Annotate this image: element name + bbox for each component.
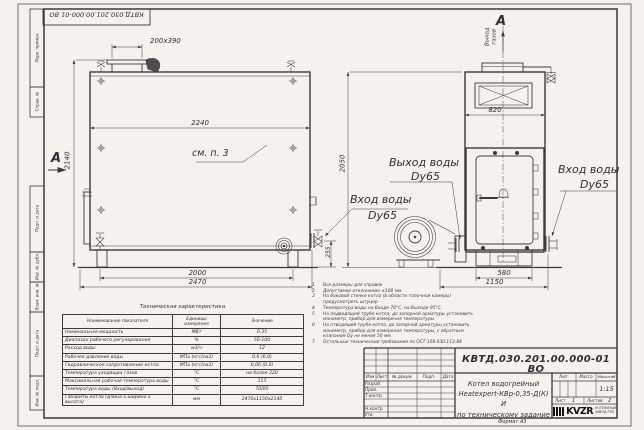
top-valve-icon [546,67,556,83]
dim-top-width: 820 [480,107,510,114]
top-stamp: КВТД.030.201.00.000-01 ВО [43,11,150,18]
product-name: Котел водогрейный Heatexpert-КВр-0,35-Д(… [456,379,551,420]
fan-icon [395,217,467,268]
col-doc: № докум. [388,375,417,379]
dim-frame: 2000 [170,270,225,277]
door-lock-icon [499,189,508,197]
scale-header: Масштаб [596,375,617,379]
company-logo: KVZR КОТЕЛЬНЫЙ ЗАВОД РЭП [553,405,616,417]
margin-label: Подп. и дата [35,185,40,251]
tech-table-title: Техническая характеристика [62,305,303,311]
margin-label: Подп. и дата [35,311,40,375]
inlet-water-label: Вход воды [350,194,411,205]
col-list: Лист [376,375,388,379]
tech-header-row: Наименование показателя Единицы измерени… [63,315,304,329]
drain-valve-icon [96,233,104,250]
kvzr-logo-text: KVZR [566,406,593,417]
scale-value: 1:15 [596,386,617,393]
outlet-leader [452,182,460,239]
side-dimensions [342,72,548,290]
inlet-leader [552,191,566,236]
sheet-label: Лист [555,399,566,403]
row-tkontr: Т.контр. [365,394,383,398]
note-item: 7Остальные технические требования по ОСТ… [312,340,484,346]
col-date: Дата [441,375,455,379]
water-outlet-flange [448,238,459,252]
table-row: Температура воды (Вход/выход)°С70/95 [63,386,304,394]
outlet-water-label: Выход воды [389,157,459,168]
table-row: Расход водым3/ч12 [63,345,304,353]
note-item: 6На отводящей трубе котла, до запорной а… [312,323,484,340]
row-prov: Пров. [365,388,377,392]
doc-number: КВТД.030.201.00.000-01 ВО [455,355,617,375]
mass-header: Масса [576,375,596,379]
dim-base: 580 [480,270,528,277]
note-item: 5На подводящей трубе котла, до запорной … [312,312,484,323]
row-nkontr: Н.контр. [365,407,384,411]
table-row: Максимальная рабочая температура воды°С1… [63,378,304,386]
inlet-water-label-side: Вход воды [558,164,619,175]
table-row: Габариты котла (длина х ширина х высота)… [63,394,304,405]
dim-overall: 2470 [170,279,225,286]
col-sign: Подп. [417,375,441,379]
format-note: Формат А3 [498,420,526,425]
inlet-water-dn: Dy65 [368,210,397,221]
table-row: Номинальная мощностьМВт0,35 [63,329,304,337]
col-izm: Изм [364,375,376,379]
table-row: Гидравлическое сопротивление котлаМПа (к… [63,361,304,369]
sight-glass-icon [276,238,292,254]
company-name: КОТЕЛЬНЫЙ ЗАВОД РЭП [595,407,616,415]
row-utv: Утв. [365,413,374,417]
table-row: Диапазон рабочего регулирования%50-100 [63,337,304,345]
see-reference: см. п. 3 [192,149,229,159]
outlet-water-dn: Dy65 [411,171,440,182]
notes-list: 1Все размеры для справок 2Допустимое отк… [312,283,484,346]
water-inlet-flange [546,236,557,252]
tech-table: Наименование показателя Единицы измерени… [62,314,304,406]
sheets-value: 2 [608,399,611,404]
section-label-front: А [51,152,61,165]
dim-outlet-height: 255 [326,240,332,264]
note-item: 3На боковой стенке котла (в области топо… [312,294,484,305]
dim-side-height: 2050 [340,149,347,179]
col-header: Значение [221,315,304,329]
margin-label: Инв. № дубл. [35,251,40,281]
col-header: Наименование показателя [63,315,173,329]
front-view [48,44,408,290]
flue-flap-icon [146,58,160,72]
air-valve-icon [287,61,295,72]
inlet-valve-icon [310,197,322,248]
lit-header: Лит. [552,375,576,379]
dim-chimney: 200х390 [150,38,181,45]
air-valve-icon [97,61,105,72]
row-razrab: Разраб. [365,382,381,386]
kvzr-logo-icon [553,407,564,416]
sheet-value: 1 [572,399,575,404]
dim-body-width: 2240 [170,120,230,127]
side-view [342,26,616,290]
table-row: Рабочее давление водыМПа (кгс/см2)0,6 (6… [63,353,304,361]
inlet-water-dn-side: Dy65 [580,179,609,190]
sheets-label: Листов [587,399,603,403]
drawing-sheet: КВТД.030.201.00.000-01 ВО Перв. примен. … [0,0,644,430]
margin-label: Перв. примен. [35,8,40,86]
gas-exit-label: газов [492,23,498,51]
dim-height: 2140 [65,146,72,176]
margin-label: Справ. № [35,86,40,116]
margin-label: Взам. инв. № [35,281,40,311]
col-header: Единицы измерения [173,315,221,329]
gas-exit-label: Выход [485,23,491,51]
lifting-mark-icon [97,77,297,214]
door-hinge-icon [533,165,538,239]
margin-label: Инв. № подл. [35,375,40,409]
table-row: Температура уходящих газов°Сне более 220 [63,369,304,377]
